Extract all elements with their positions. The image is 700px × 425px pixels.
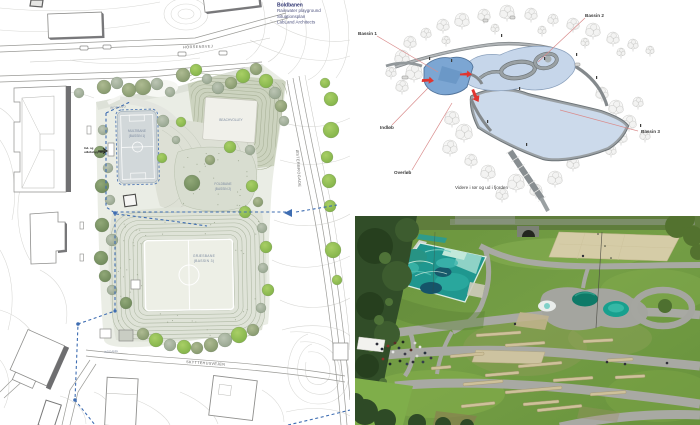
svg-text:BEACHVOLLEY: BEACHVOLLEY: [219, 118, 243, 122]
svg-text:Overløb: Overløb: [394, 170, 412, 175]
svg-text:Situationsplan: Situationsplan: [277, 14, 306, 19]
svg-text:(BASSIN 3): (BASSIN 3): [194, 259, 215, 263]
svg-text:(BASSIN 2): (BASSIN 2): [215, 187, 231, 191]
svg-text:udløbsbygværk: udløbsbygværk: [84, 150, 105, 154]
svg-text:MULTIBANE: MULTIBANE: [128, 129, 146, 133]
svg-text:Bassin 1: Bassin 1: [358, 31, 377, 36]
svg-text:Videre i rør og ud i fjorden: Videre i rør og ud i fjorden: [455, 185, 508, 190]
svg-text:(BASSIN 1): (BASSIN 1): [129, 134, 145, 138]
svg-text:FOLDBANE: FOLDBANE: [214, 182, 231, 186]
svg-text:LabLand Architects: LabLand Architects: [277, 19, 316, 24]
svg-text:Bassin 2: Bassin 2: [585, 13, 604, 18]
svg-text:Indløb: Indløb: [380, 125, 394, 130]
svg-text:Bassin 3: Bassin 3: [641, 129, 660, 134]
svg-text:Rainwater playground: Rainwater playground: [277, 8, 321, 13]
svg-text:GRÆSBANE: GRÆSBANE: [193, 254, 216, 258]
